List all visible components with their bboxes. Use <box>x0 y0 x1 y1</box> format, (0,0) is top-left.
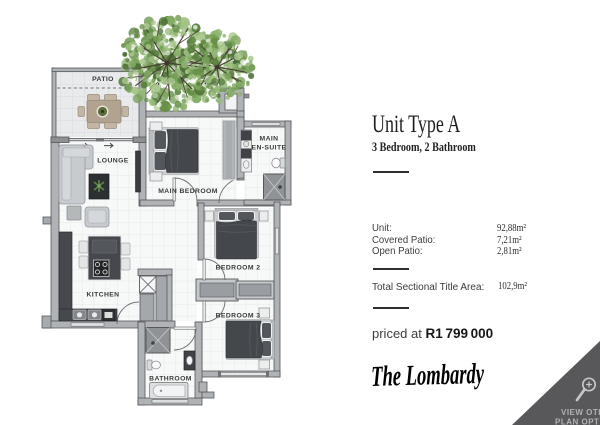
svg-text:MAIN: MAIN <box>260 135 279 142</box>
svg-text:LOUNGE: LOUNGE <box>97 158 129 165</box>
svg-text:KITCHEN: KITCHEN <box>86 292 119 299</box>
svg-text:PLAN OPTIONS: PLAN OPTIONS <box>555 418 600 425</box>
svg-text:BATHROOM: BATHROOM <box>149 375 192 382</box>
svg-text:BEDROOM 3: BEDROOM 3 <box>216 312 261 319</box>
svg-text:BEDROOM 2: BEDROOM 2 <box>216 264 261 271</box>
svg-text:MAIN BEDROOM: MAIN BEDROOM <box>158 188 218 195</box>
svg-text:PATIO: PATIO <box>92 76 114 83</box>
svg-text:VIEW OTHER: VIEW OTHER <box>561 408 600 417</box>
svg-text:EN-SUITE: EN-SUITE <box>252 144 287 151</box>
